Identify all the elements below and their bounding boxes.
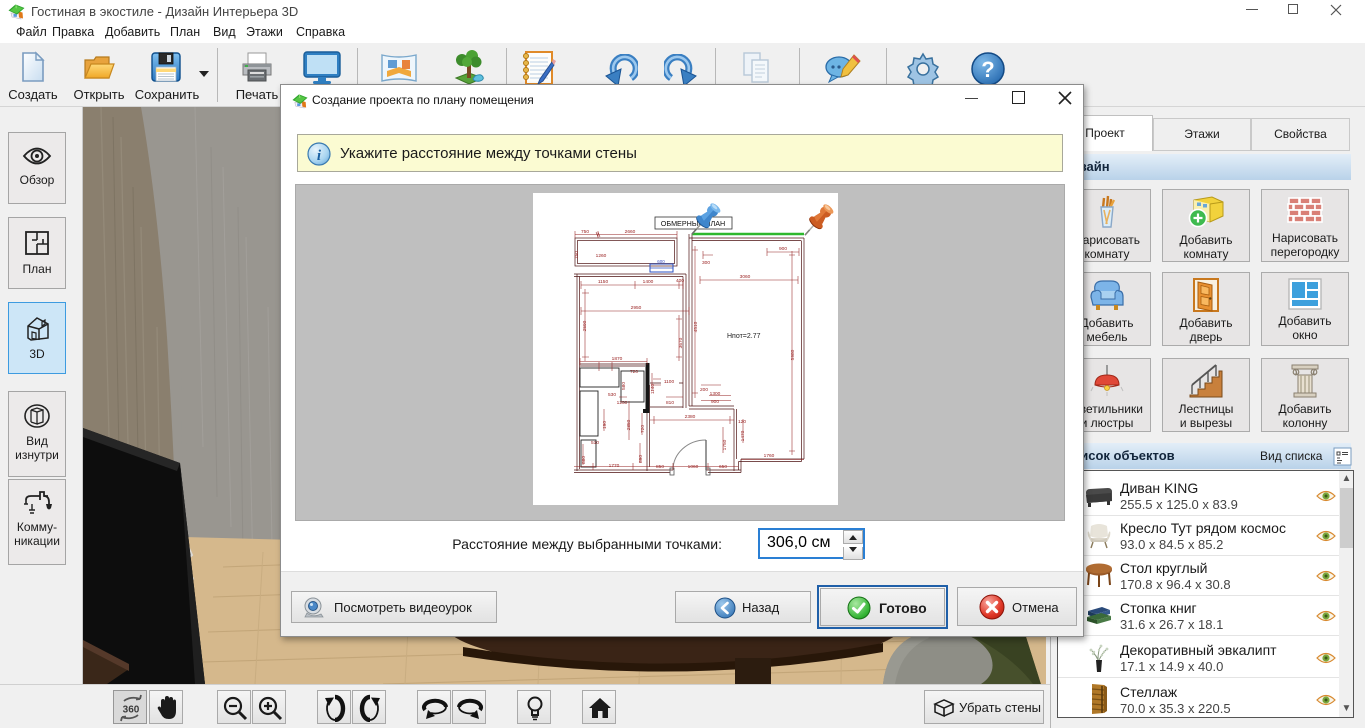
svg-text:510: 510: [591, 440, 599, 446]
svg-text:2590: 2590: [582, 320, 588, 331]
svg-text:300: 300: [702, 260, 710, 266]
svg-text:580: 580: [621, 382, 627, 390]
svg-text:810: 810: [666, 400, 674, 406]
svg-text:1870: 1870: [612, 356, 623, 362]
svg-text:890: 890: [638, 455, 644, 463]
svg-text:750: 750: [581, 229, 589, 235]
svg-text:2950: 2950: [631, 305, 642, 311]
svg-text:?: ?: [981, 57, 994, 82]
svg-text:1400: 1400: [643, 279, 654, 285]
svg-text:600: 600: [657, 259, 665, 264]
svg-text:750: 750: [574, 251, 580, 259]
svg-text:720: 720: [640, 425, 646, 433]
svg-text:1760: 1760: [764, 453, 775, 459]
svg-text:850: 850: [656, 464, 664, 470]
svg-text:Hпот=2.77: Hпот=2.77: [727, 333, 761, 340]
svg-text:1770: 1770: [609, 463, 620, 469]
svg-text:1060: 1060: [688, 464, 699, 470]
svg-text:650: 650: [719, 464, 727, 470]
svg-text:120: 120: [738, 419, 746, 425]
svg-text:880: 880: [581, 456, 587, 464]
svg-text:360: 360: [123, 705, 140, 716]
svg-text:2660: 2660: [625, 229, 636, 235]
svg-text:2850: 2850: [626, 419, 632, 430]
svg-text:ОБМЕРНЫЙ ПЛАН: ОБМЕРНЫЙ ПЛАН: [661, 219, 725, 228]
svg-text:900: 900: [711, 399, 719, 405]
svg-text:1470: 1470: [740, 430, 746, 441]
svg-text:3670: 3670: [678, 337, 684, 348]
svg-text:1100: 1100: [664, 379, 675, 385]
svg-text:5980: 5980: [790, 349, 796, 360]
svg-text:1150: 1150: [598, 279, 609, 285]
svg-text:1140: 1140: [650, 384, 656, 395]
svg-text:1250: 1250: [617, 400, 628, 406]
svg-text:4510: 4510: [693, 321, 699, 332]
svg-text:200: 200: [700, 387, 708, 393]
svg-text:1260: 1260: [596, 253, 607, 259]
svg-text:1300: 1300: [710, 391, 721, 397]
svg-text:190: 190: [602, 421, 608, 429]
svg-text:530: 530: [608, 392, 616, 398]
svg-text:720: 720: [630, 369, 638, 375]
svg-text:2380: 2380: [685, 414, 696, 420]
svg-text:3060: 3060: [740, 274, 751, 280]
svg-text:400: 400: [676, 278, 684, 284]
svg-text:1750: 1750: [722, 439, 728, 450]
svg-text:900: 900: [779, 246, 787, 252]
